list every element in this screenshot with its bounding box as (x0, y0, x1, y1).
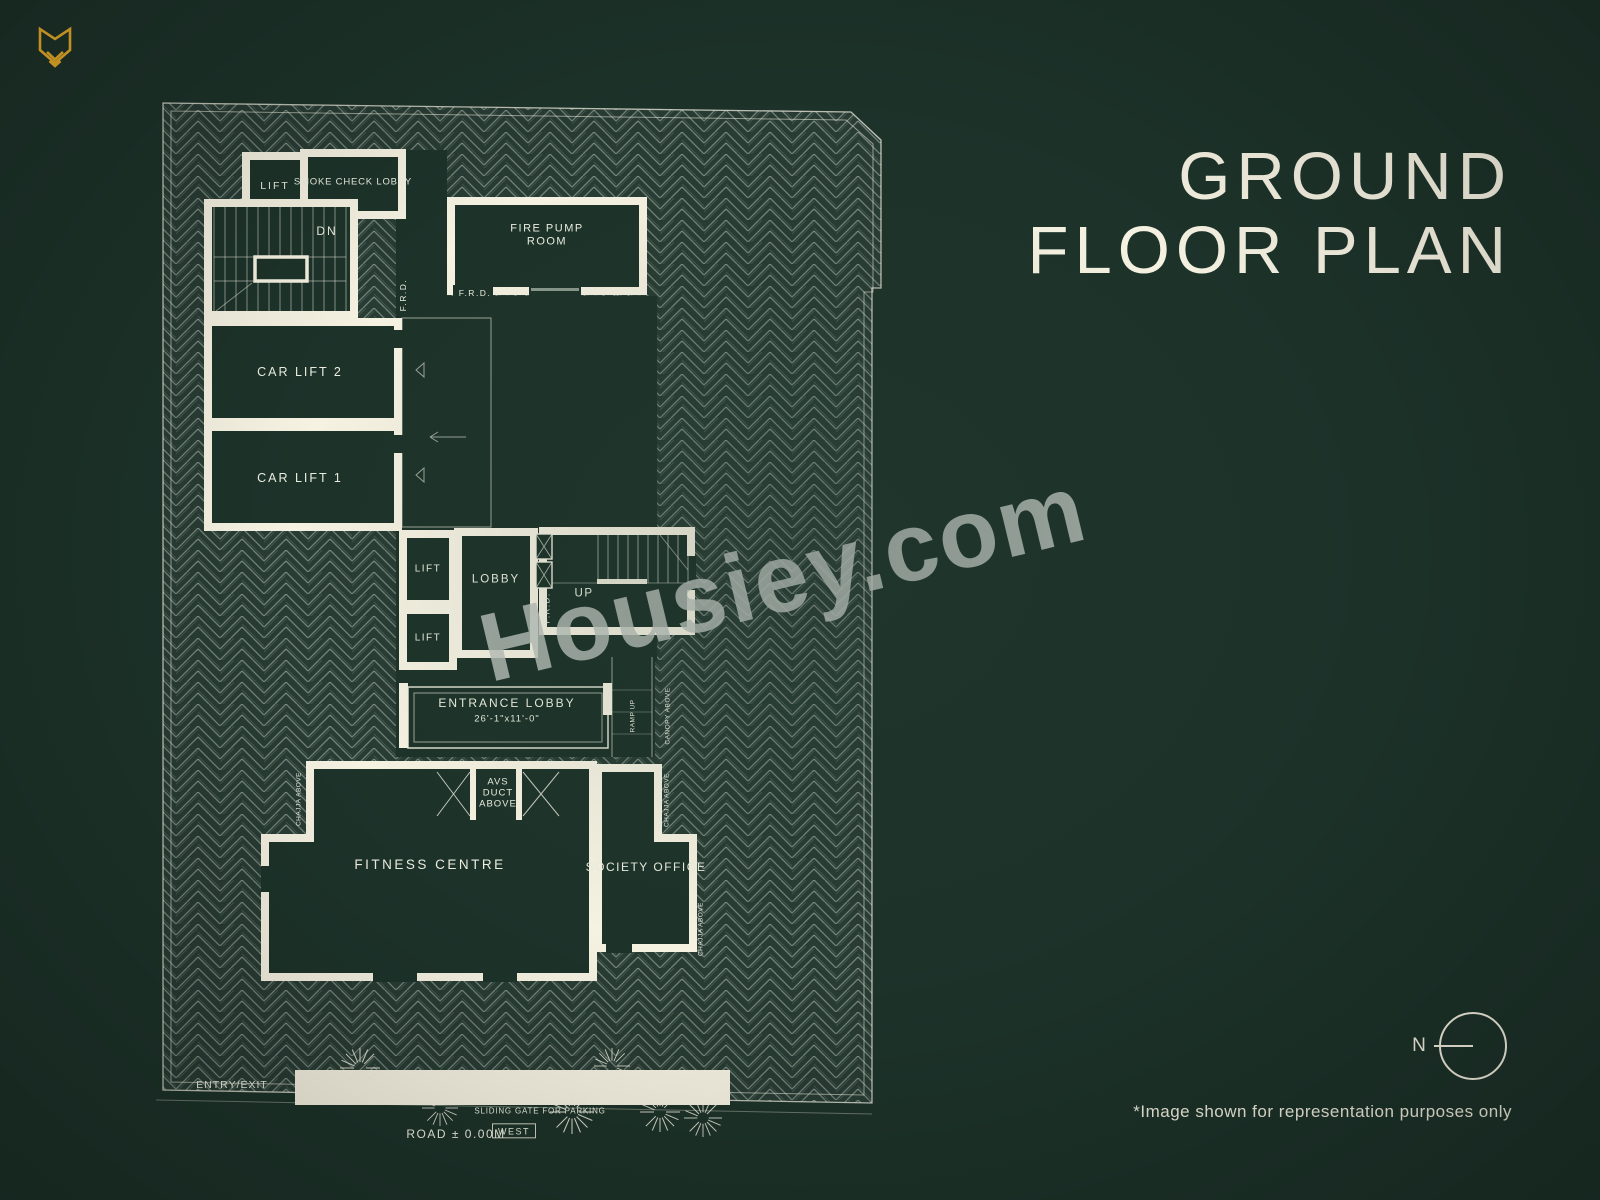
room-label-car-lift-1: CAR LIFT 1 (257, 471, 343, 485)
room-label-lift-b: LIFT (415, 632, 442, 644)
annotation-frd-fire-pump: F.R.D. (459, 289, 492, 299)
page-title-line2: FLOOR PLAN (1020, 214, 1512, 288)
stair-down-landing (255, 257, 307, 281)
compass-north-label: N (1412, 1035, 1426, 1057)
fire-pump-window (531, 288, 579, 291)
disclaimer-text: *Image shown for representation purposes… (1000, 1102, 1512, 1122)
room-label-entrance-lobby-dimension: 26'-1"x11'-0" (474, 715, 539, 726)
annotation-ramp-up: RAMP UP (629, 700, 636, 733)
north-compass-icon (1434, 1013, 1506, 1079)
annotation-canopy-above: CANOPY ABOVE (664, 687, 671, 744)
room-label-stair-down: DN (316, 225, 337, 239)
annotation-chajja-above-right: CHAJJA ABOVE (697, 902, 704, 956)
room-label-car-lift-2: CAR LIFT 2 (257, 365, 343, 379)
annotation-direction-west: WEST (492, 1123, 536, 1138)
room-label-fire-pump: FIRE PUMP ROOM (510, 222, 583, 247)
annotation-chajja-above-mid: CHAJJA ABOVE (663, 773, 670, 827)
room-label-avs-duct: AVS DUCT ABOVE (479, 778, 517, 811)
room-label-society-office: SOCIETY OFFICE (586, 861, 707, 875)
room-label-lift-top: LIFT (260, 180, 290, 192)
annotation-chajja-above-left: CHAJJA ABOVE (295, 772, 302, 826)
room-label-fitness-centre: FITNESS CENTRE (354, 857, 505, 873)
annotation-entry-exit: ENTRY/EXIT (196, 1079, 268, 1091)
annotation-road-level: ROAD ± 0.00M (406, 1128, 505, 1142)
room-label-lift-a: LIFT (415, 563, 442, 575)
annotation-sliding-gate: SLIDING GATE FOR PARKING (474, 1106, 605, 1115)
brand-logo-icon (40, 29, 70, 66)
room-label-smoke-check-lobby: SMOKE CHECK LOBBY (294, 178, 412, 189)
annotation-frd-corridor: F.R.D. (399, 279, 409, 312)
page-title: GROUND FLOOR PLAN (1020, 140, 1512, 288)
page-title-line1: GROUND (1020, 140, 1512, 214)
